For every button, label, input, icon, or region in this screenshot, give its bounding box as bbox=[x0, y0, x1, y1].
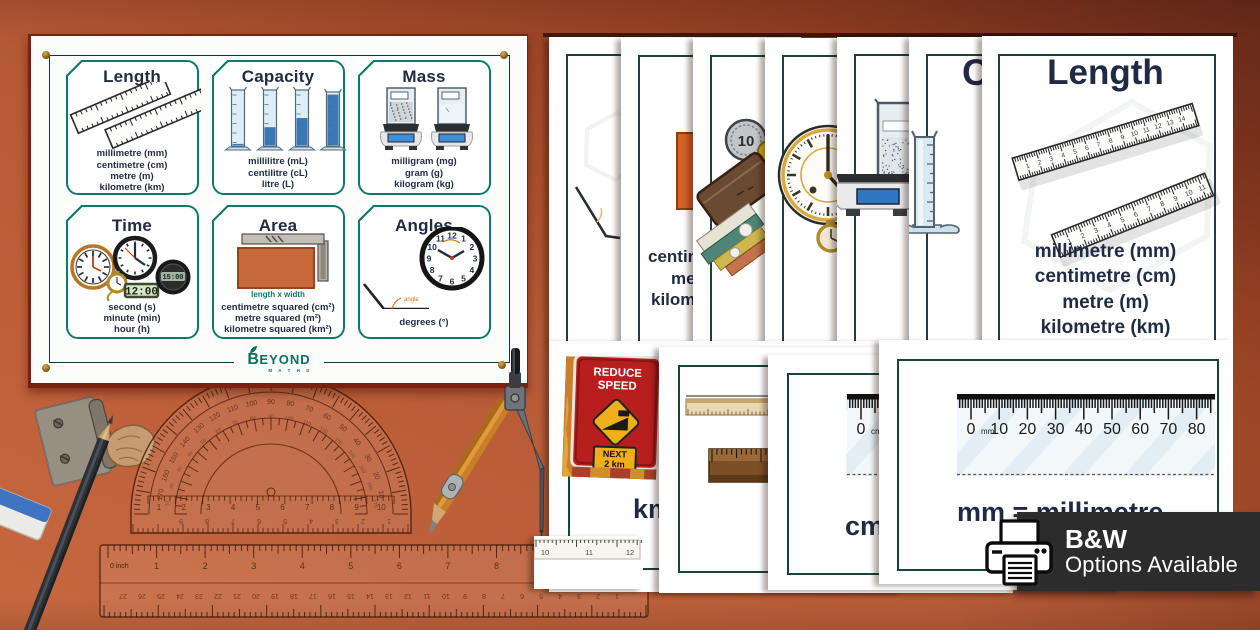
svg-text:60: 60 bbox=[1131, 421, 1149, 438]
svg-text:mm: mm bbox=[981, 427, 995, 436]
svg-text:20: 20 bbox=[1019, 421, 1037, 438]
svg-text:10: 10 bbox=[541, 548, 549, 557]
svg-text:40: 40 bbox=[1075, 421, 1093, 438]
svg-text:80: 80 bbox=[1188, 421, 1206, 438]
svg-text:10: 10 bbox=[738, 133, 755, 150]
svg-text:70: 70 bbox=[1160, 421, 1178, 438]
svg-text:11: 11 bbox=[585, 548, 593, 557]
svg-text:30: 30 bbox=[1047, 421, 1065, 438]
svg-text:50: 50 bbox=[1103, 421, 1121, 438]
svg-text:REDUCE: REDUCE bbox=[593, 366, 642, 380]
svg-text:12: 12 bbox=[626, 548, 634, 557]
svg-text:SPEED: SPEED bbox=[598, 379, 637, 392]
svg-text:0: 0 bbox=[967, 421, 976, 438]
svg-text:0: 0 bbox=[857, 421, 866, 438]
